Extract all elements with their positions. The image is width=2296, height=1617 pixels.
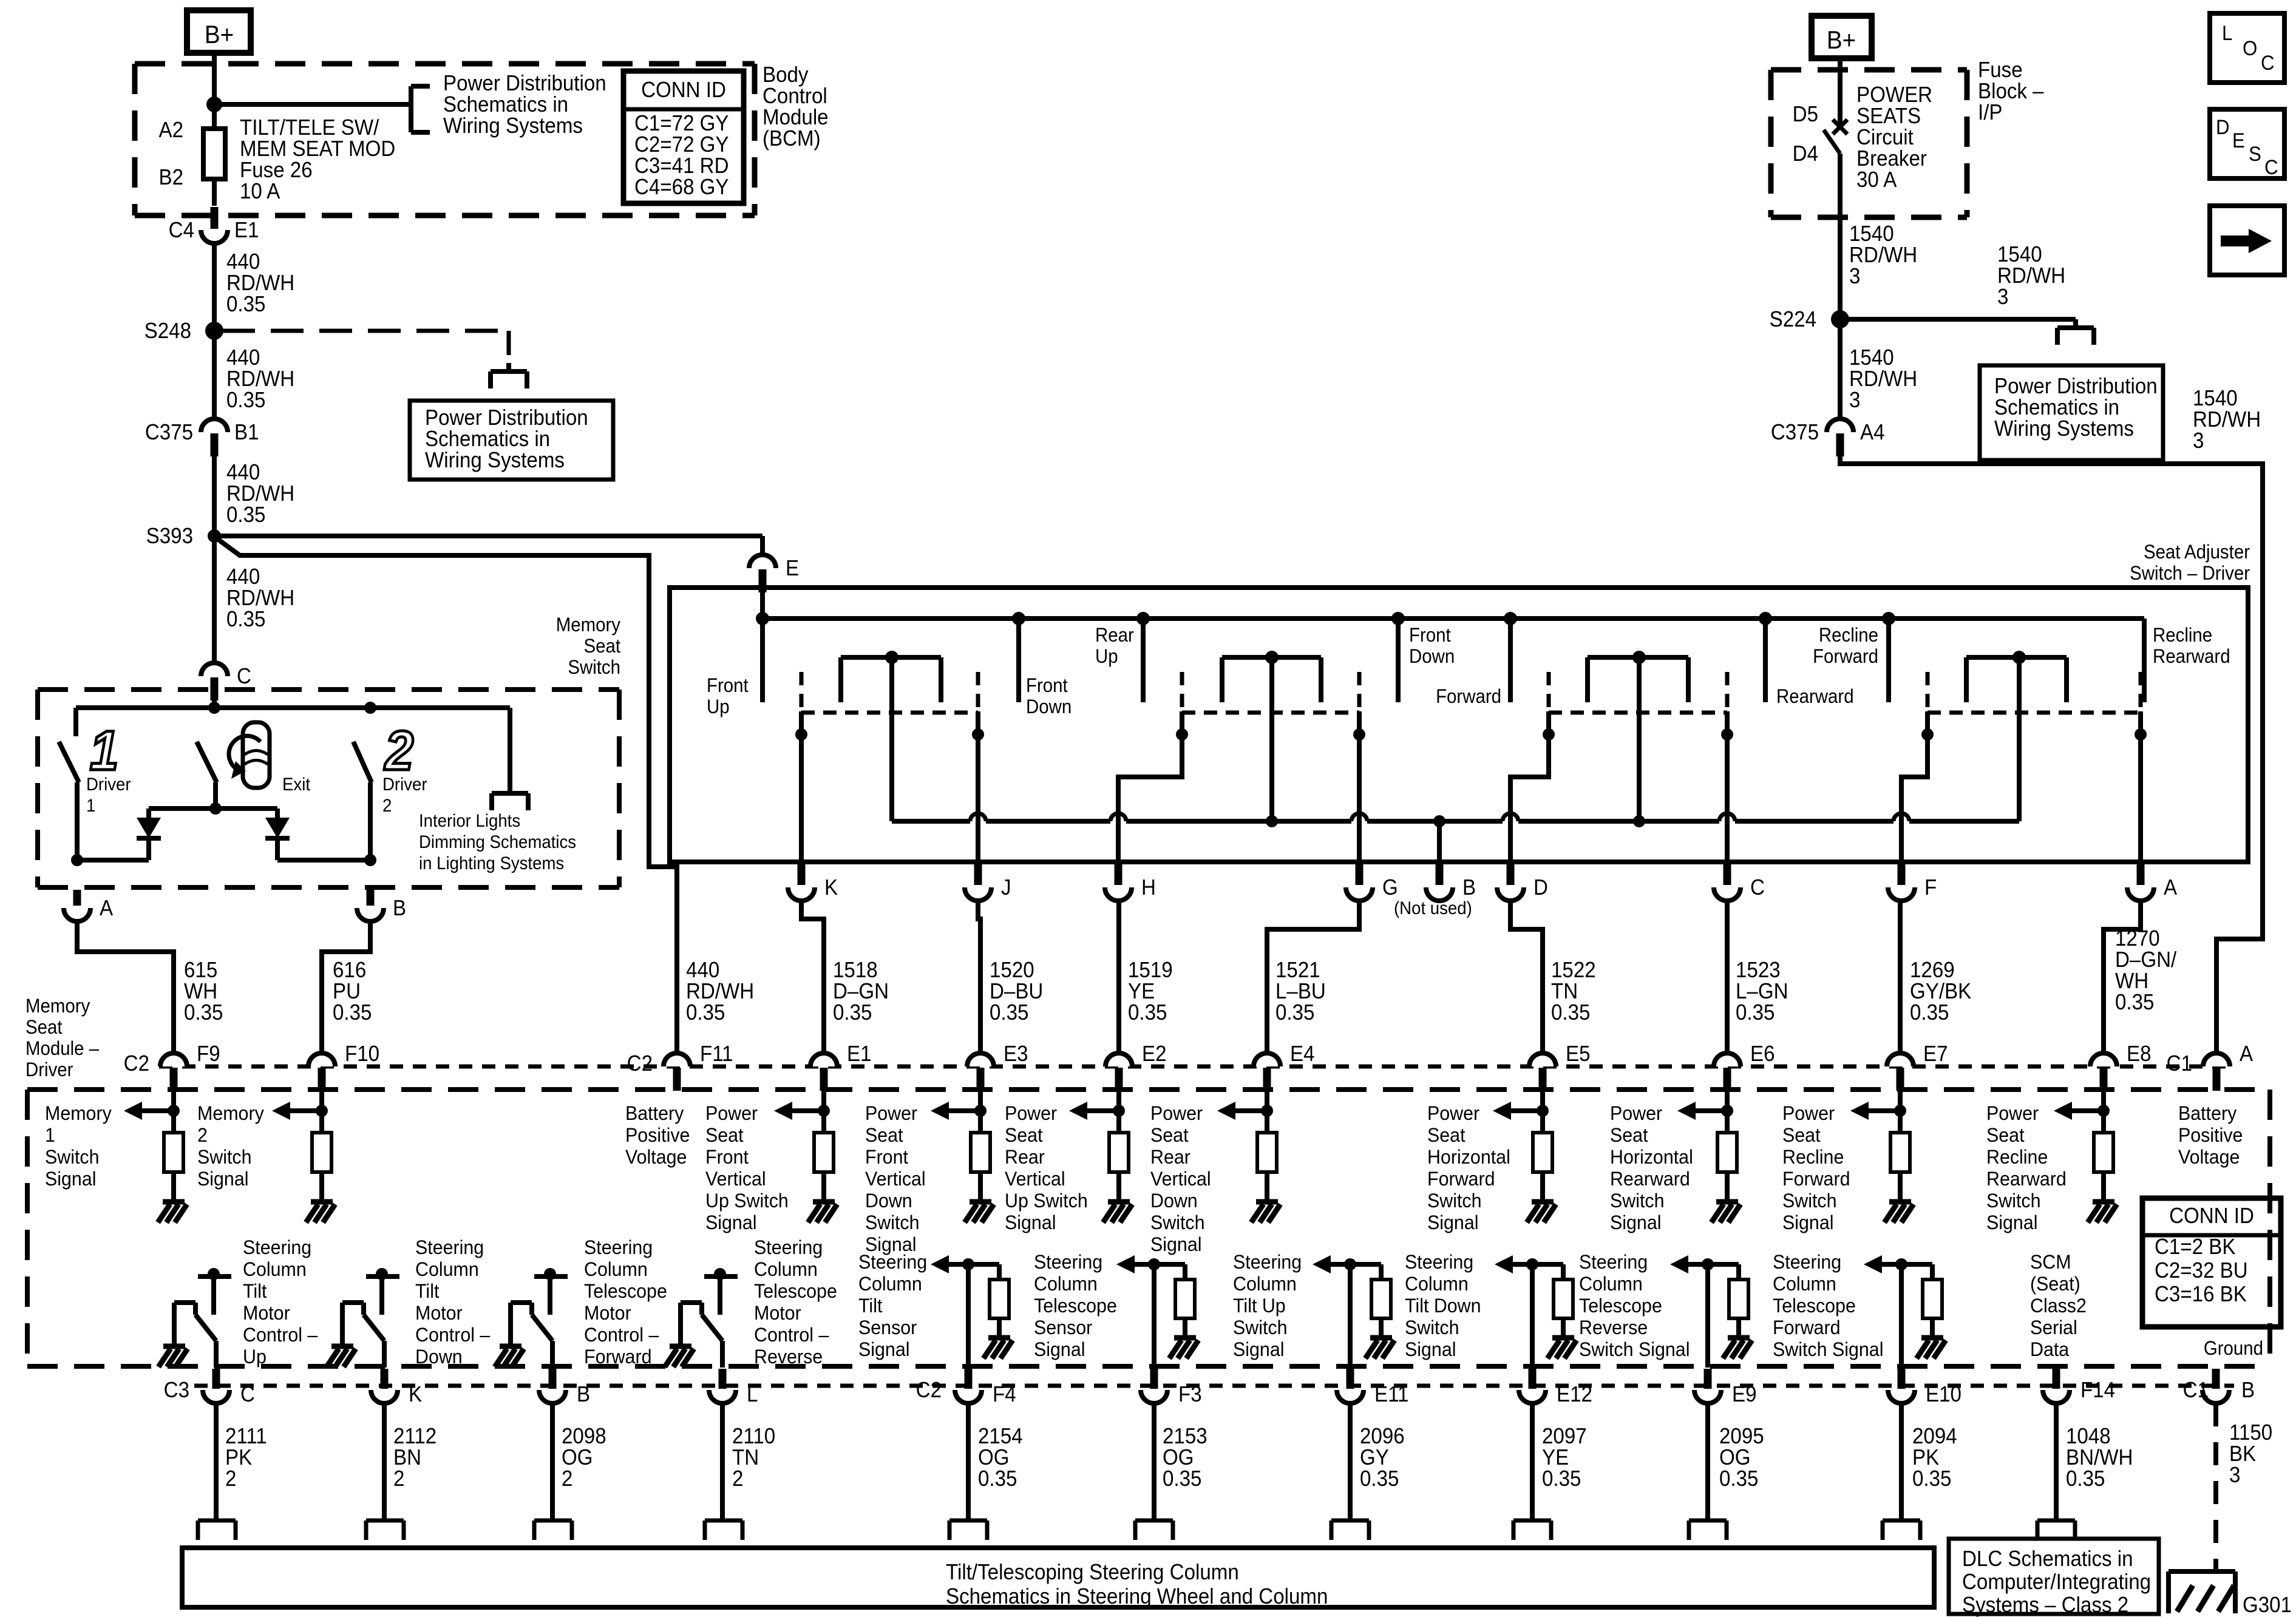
svg-text:Front: Front <box>1409 624 1451 646</box>
svg-text:Switch Signal: Switch Signal <box>1579 1338 1690 1360</box>
svg-text:PK: PK <box>1912 1446 1939 1470</box>
svg-text:3: 3 <box>1849 388 1860 413</box>
svg-text:Circuit: Circuit <box>1856 126 1914 150</box>
svg-text:Sensor: Sensor <box>858 1317 917 1338</box>
svg-text:Recline: Recline <box>1782 1146 1844 1168</box>
svg-text:Sensor: Sensor <box>1034 1317 1092 1338</box>
svg-text:1540: 1540 <box>1997 243 2042 267</box>
svg-text:G: G <box>1382 876 1398 900</box>
svg-text:C3: C3 <box>164 1378 189 1403</box>
svg-text:Control –: Control – <box>584 1324 659 1346</box>
svg-text:DLC Schematics in: DLC Schematics in <box>1962 1547 2133 1571</box>
svg-text:G301: G301 <box>2243 1593 2292 1617</box>
svg-text:2: 2 <box>384 719 413 782</box>
svg-text:Ground: Ground <box>2204 1337 2263 1359</box>
svg-text:OG: OG <box>978 1446 1010 1470</box>
svg-text:F11: F11 <box>700 1042 733 1066</box>
svg-text:Driver: Driver <box>86 775 131 795</box>
svg-text:2097: 2097 <box>1542 1425 1587 1449</box>
svg-text:E2: E2 <box>1142 1042 1166 1066</box>
svg-text:Tilt/Telescoping Steering Colu: Tilt/Telescoping Steering Column <box>946 1561 1239 1585</box>
svg-text:F4: F4 <box>993 1383 1016 1407</box>
svg-text:E8: E8 <box>2127 1042 2151 1066</box>
svg-text:Driver: Driver <box>25 1059 73 1080</box>
svg-text:C2: C2 <box>627 1052 653 1076</box>
svg-text:Voltage: Voltage <box>2178 1146 2240 1168</box>
svg-text:D5: D5 <box>1793 103 1818 127</box>
svg-text:440: 440 <box>226 250 260 274</box>
svg-text:K: K <box>824 876 838 900</box>
svg-text:0.35: 0.35 <box>2115 991 2154 1015</box>
svg-text:Recline: Recline <box>1819 624 1878 646</box>
svg-text:Seat: Seat <box>1427 1124 1466 1146</box>
svg-text:C: C <box>240 1383 255 1407</box>
svg-text:Tilt Down: Tilt Down <box>1405 1295 1481 1317</box>
svg-text:Fuse: Fuse <box>1978 58 2023 83</box>
svg-text:Switch: Switch <box>568 656 620 678</box>
svg-text:POWER: POWER <box>1856 83 1932 107</box>
svg-text:YE: YE <box>1542 1446 1569 1470</box>
svg-text:Signal: Signal <box>1150 1233 1201 1255</box>
svg-text:Rearward: Rearward <box>1776 685 1854 707</box>
svg-text:Signal: Signal <box>1427 1212 1478 1233</box>
svg-text:GY/BK: GY/BK <box>1910 980 1971 1004</box>
svg-text:Control –: Control – <box>243 1324 318 1346</box>
svg-text:2098: 2098 <box>562 1425 606 1449</box>
svg-text:0.35: 0.35 <box>226 293 265 317</box>
svg-text:I/P: I/P <box>1978 101 2002 125</box>
svg-text:Reverse: Reverse <box>754 1346 823 1368</box>
svg-text:1518: 1518 <box>833 958 878 983</box>
svg-text:Rear: Rear <box>1150 1146 1190 1168</box>
svg-text:Control –: Control – <box>754 1324 829 1346</box>
svg-text:Seat: Seat <box>1005 1124 1043 1146</box>
svg-text:Column: Column <box>415 1258 479 1280</box>
svg-text:1520: 1520 <box>990 958 1034 983</box>
svg-text:E4: E4 <box>1290 1042 1314 1066</box>
svg-text:Steering: Steering <box>243 1236 311 1258</box>
svg-text:RD/WH: RD/WH <box>1849 243 1917 268</box>
svg-text:B: B <box>1462 876 1476 900</box>
svg-text:RD/WH: RD/WH <box>226 482 294 506</box>
svg-text:C: C <box>237 665 251 689</box>
svg-text:RD/WH: RD/WH <box>686 980 754 1004</box>
svg-text:0.35: 0.35 <box>1542 1467 1581 1491</box>
svg-text:Dimming Schematics: Dimming Schematics <box>419 832 576 852</box>
svg-text:Forward: Forward <box>584 1346 651 1368</box>
svg-text:Driver: Driver <box>382 775 427 795</box>
svg-text:1270: 1270 <box>2115 927 2160 951</box>
svg-text:2153: 2153 <box>1163 1425 1207 1449</box>
svg-text:SCM: SCM <box>2030 1251 2071 1273</box>
svg-text:2095: 2095 <box>1719 1425 1764 1449</box>
svg-text:Motor: Motor <box>243 1302 290 1324</box>
svg-text:0.35: 0.35 <box>1910 1001 1949 1025</box>
svg-text:S248: S248 <box>144 319 191 344</box>
svg-text:Signal: Signal <box>1405 1338 1456 1360</box>
svg-text:0.35: 0.35 <box>978 1467 1017 1491</box>
svg-text:2110: 2110 <box>732 1425 775 1449</box>
svg-text:RD/WH: RD/WH <box>226 271 294 296</box>
svg-text:MEM SEAT MOD: MEM SEAT MOD <box>240 137 395 161</box>
svg-text:D–BU: D–BU <box>990 980 1043 1004</box>
svg-text:Module: Module <box>763 106 829 130</box>
svg-text:Recline: Recline <box>1986 1146 2048 1168</box>
svg-text:Module –: Module – <box>25 1037 100 1059</box>
svg-text:CONN ID: CONN ID <box>2169 1204 2254 1229</box>
svg-text:RD/WH: RD/WH <box>2193 408 2261 432</box>
svg-text:Power: Power <box>1986 1102 2039 1124</box>
svg-text:H: H <box>1141 876 1156 900</box>
svg-text:Rear: Rear <box>1095 624 1134 646</box>
svg-text:TN: TN <box>732 1446 759 1470</box>
svg-text:Wiring Systems: Wiring Systems <box>443 114 583 138</box>
svg-text:Schematics in: Schematics in <box>1994 396 2119 420</box>
svg-text:E1: E1 <box>847 1042 871 1066</box>
svg-text:Column: Column <box>754 1258 818 1280</box>
svg-text:Class2: Class2 <box>2030 1295 2087 1317</box>
svg-text:O: O <box>2243 36 2257 60</box>
svg-text:Systems – Class 2: Systems – Class 2 <box>1962 1593 2128 1617</box>
svg-text:Body: Body <box>763 63 809 87</box>
svg-text:E5: E5 <box>1566 1042 1590 1066</box>
svg-text:A: A <box>100 897 113 921</box>
svg-text:Control –: Control – <box>415 1324 491 1346</box>
svg-text:Switch: Switch <box>865 1212 920 1233</box>
svg-text:0.35: 0.35 <box>833 1001 872 1025</box>
svg-text:E11: E11 <box>1374 1383 1408 1407</box>
svg-text:Switch: Switch <box>1405 1317 1459 1338</box>
svg-text:0.35: 0.35 <box>226 503 265 527</box>
svg-text:Wiring Systems: Wiring Systems <box>425 449 565 473</box>
svg-text:TILT/TELE SW/: TILT/TELE SW/ <box>240 116 379 140</box>
svg-text:2: 2 <box>562 1467 572 1491</box>
svg-text:Battery: Battery <box>2178 1102 2237 1124</box>
svg-text:A: A <box>2164 876 2177 900</box>
svg-text:F3: F3 <box>1178 1383 1202 1407</box>
svg-text:BK: BK <box>2229 1442 2256 1466</box>
svg-text:A2: A2 <box>159 118 183 143</box>
svg-text:Forward: Forward <box>1782 1168 1850 1190</box>
svg-text:B+: B+ <box>1827 25 1856 54</box>
svg-text:2111: 2111 <box>225 1425 267 1449</box>
svg-text:CONN ID: CONN ID <box>641 78 726 103</box>
svg-text:1540: 1540 <box>1849 222 1894 246</box>
svg-text:Seat: Seat <box>705 1124 744 1146</box>
svg-text:Serial: Serial <box>2030 1317 2077 1338</box>
svg-text:Column: Column <box>1034 1273 1098 1295</box>
svg-text:Seat: Seat <box>1986 1124 2025 1146</box>
svg-text:2: 2 <box>382 796 392 816</box>
svg-text:Switch: Switch <box>1233 1317 1288 1338</box>
svg-text:C4=68 GY: C4=68 GY <box>634 175 729 200</box>
svg-text:Schematics in: Schematics in <box>443 93 568 117</box>
svg-text:1540: 1540 <box>2193 387 2238 411</box>
svg-text:Power: Power <box>1610 1102 1662 1124</box>
svg-text:Seat: Seat <box>25 1016 63 1038</box>
svg-text:1: 1 <box>45 1124 55 1146</box>
svg-text:Breaker: Breaker <box>1856 147 1927 171</box>
svg-text:30 A: 30 A <box>1856 168 1897 192</box>
svg-text:Front: Front <box>1026 674 1068 696</box>
svg-text:Tilt: Tilt <box>243 1280 267 1302</box>
svg-text:1522: 1522 <box>1551 958 1596 983</box>
svg-text:C1=2 BK: C1=2 BK <box>2155 1235 2235 1259</box>
svg-text:Seat: Seat <box>1610 1124 1648 1146</box>
svg-text:Control: Control <box>763 84 827 109</box>
svg-text:Switch: Switch <box>1427 1190 1482 1212</box>
svg-text:0.35: 0.35 <box>1551 1001 1590 1025</box>
svg-text:Vertical: Vertical <box>1150 1168 1211 1190</box>
svg-text:0.35: 0.35 <box>1360 1467 1399 1491</box>
svg-text:1: 1 <box>86 796 95 816</box>
svg-text:0.35: 0.35 <box>226 608 265 632</box>
svg-text:Computer/Integrating: Computer/Integrating <box>1962 1570 2151 1595</box>
svg-text:0.35: 0.35 <box>333 1001 372 1025</box>
svg-text:F9: F9 <box>197 1042 220 1066</box>
svg-text:C2: C2 <box>124 1052 149 1076</box>
svg-text:Front: Front <box>707 674 749 696</box>
svg-text:Steering: Steering <box>584 1236 653 1258</box>
svg-text:2: 2 <box>393 1467 404 1491</box>
svg-text:Column: Column <box>858 1273 922 1295</box>
svg-text:Signal: Signal <box>1610 1212 1661 1233</box>
svg-text:Rearward: Rearward <box>1986 1168 2067 1190</box>
svg-text:2096: 2096 <box>1360 1425 1405 1449</box>
svg-text:Forward: Forward <box>1427 1168 1495 1190</box>
svg-text:C: C <box>2261 51 2275 75</box>
svg-text:Up: Up <box>243 1346 267 1368</box>
svg-text:1540: 1540 <box>1849 346 1894 370</box>
svg-text:Up: Up <box>707 696 730 717</box>
svg-text:BN: BN <box>393 1446 421 1470</box>
svg-text:Steering: Steering <box>1773 1251 1841 1273</box>
svg-text:F14: F14 <box>2080 1378 2115 1403</box>
svg-text:2094: 2094 <box>1912 1425 1957 1449</box>
svg-text:Switch: Switch <box>1150 1212 1205 1233</box>
svg-text:1048: 1048 <box>2066 1425 2111 1449</box>
svg-text:Motor: Motor <box>415 1302 463 1324</box>
svg-text:C375: C375 <box>145 421 193 445</box>
svg-text:L–BU: L–BU <box>1275 980 1326 1004</box>
svg-text:C3=41 RD: C3=41 RD <box>634 154 729 178</box>
svg-text:Telescope: Telescope <box>1034 1295 1117 1317</box>
svg-text:0.35: 0.35 <box>1275 1001 1314 1025</box>
svg-text:440: 440 <box>226 346 260 370</box>
svg-text:D: D <box>2216 115 2230 139</box>
svg-text:3: 3 <box>2193 429 2204 453</box>
svg-text:F: F <box>1924 876 1937 900</box>
svg-text:Battery: Battery <box>625 1102 684 1124</box>
svg-text:E6: E6 <box>1750 1042 1775 1066</box>
svg-text:Tilt Up: Tilt Up <box>1233 1295 1286 1317</box>
svg-text:Rearward: Rearward <box>1610 1168 1690 1190</box>
svg-text:Steering: Steering <box>754 1236 823 1258</box>
svg-text:Horizontal: Horizontal <box>1427 1146 1510 1168</box>
svg-text:3: 3 <box>1849 265 1860 289</box>
svg-text:Power: Power <box>865 1102 917 1124</box>
svg-text:K: K <box>409 1383 422 1407</box>
svg-text:Vertical: Vertical <box>705 1168 766 1190</box>
svg-text:Vertical: Vertical <box>1005 1168 1065 1190</box>
svg-text:2: 2 <box>732 1467 743 1491</box>
svg-text:Recline: Recline <box>2153 624 2212 646</box>
svg-text:L–GN: L–GN <box>1736 980 1788 1004</box>
svg-text:E3: E3 <box>1004 1042 1028 1066</box>
svg-text:Telescope: Telescope <box>1773 1295 1856 1317</box>
svg-text:RD/WH: RD/WH <box>226 586 294 611</box>
svg-text:Voltage: Voltage <box>625 1146 687 1168</box>
svg-text:Signal: Signal <box>1233 1338 1284 1360</box>
svg-text:E12: E12 <box>1557 1383 1592 1407</box>
svg-text:S: S <box>2249 142 2261 166</box>
svg-text:Memory: Memory <box>45 1102 112 1124</box>
svg-text:Memory: Memory <box>197 1102 264 1124</box>
svg-text:Motor: Motor <box>754 1302 801 1324</box>
svg-text:Interior Lights: Interior Lights <box>419 811 520 831</box>
svg-text:Switch: Switch <box>45 1146 100 1168</box>
svg-text:1150: 1150 <box>2229 1421 2272 1445</box>
svg-text:Seat: Seat <box>1782 1124 1821 1146</box>
svg-text:Steering: Steering <box>1034 1251 1102 1273</box>
svg-text:Positive: Positive <box>625 1124 690 1146</box>
svg-text:Power: Power <box>1150 1102 1203 1124</box>
svg-text:WH: WH <box>2115 969 2148 994</box>
svg-text:L: L <box>747 1383 758 1407</box>
svg-text:Vertical: Vertical <box>865 1168 926 1190</box>
svg-text:Signal: Signal <box>858 1338 909 1360</box>
svg-text:RD/WH: RD/WH <box>1849 367 1917 392</box>
svg-text:Switch Signal: Switch Signal <box>1773 1338 1883 1360</box>
svg-text:0.35: 0.35 <box>686 1001 725 1025</box>
svg-text:Forward: Forward <box>1773 1317 1840 1338</box>
svg-text:PK: PK <box>225 1446 252 1470</box>
svg-text:Signal: Signal <box>1034 1338 1085 1360</box>
svg-text:Column: Column <box>584 1258 648 1280</box>
svg-text:C2: C2 <box>916 1378 942 1403</box>
svg-text:Front: Front <box>705 1146 749 1168</box>
svg-text:1269: 1269 <box>1910 958 1955 983</box>
svg-text:Down: Down <box>1026 696 1072 717</box>
svg-text:3: 3 <box>1997 285 2008 310</box>
svg-text:1521: 1521 <box>1275 958 1320 983</box>
svg-text:Tilt: Tilt <box>415 1280 440 1302</box>
svg-text:2: 2 <box>197 1124 208 1146</box>
svg-text:Reverse: Reverse <box>1579 1317 1648 1338</box>
svg-text:Signal: Signal <box>1986 1212 2037 1233</box>
svg-text:L: L <box>2222 21 2232 45</box>
svg-text:Telescope: Telescope <box>754 1280 837 1302</box>
svg-text:C4: C4 <box>169 219 194 243</box>
svg-text:E1: E1 <box>234 219 259 243</box>
svg-text:Rearward: Rearward <box>2153 645 2230 667</box>
svg-text:YE: YE <box>1128 980 1155 1004</box>
svg-text:440: 440 <box>686 958 719 983</box>
svg-text:0.35: 0.35 <box>1128 1001 1167 1025</box>
svg-text:Up Switch: Up Switch <box>1005 1190 1088 1212</box>
svg-text:E9: E9 <box>1732 1383 1756 1407</box>
svg-text:Steering: Steering <box>858 1251 927 1273</box>
svg-text:Power: Power <box>1427 1102 1479 1124</box>
svg-text:WH: WH <box>184 980 217 1004</box>
svg-text:C1=72 GY: C1=72 GY <box>634 112 729 136</box>
svg-text:Block –: Block – <box>1978 80 2044 104</box>
svg-text:Positive: Positive <box>2178 1124 2243 1146</box>
svg-text:B1: B1 <box>234 421 259 445</box>
svg-text:C375: C375 <box>1771 421 1819 445</box>
svg-text:RD/WH: RD/WH <box>226 367 294 392</box>
svg-text:Seat: Seat <box>865 1124 903 1146</box>
svg-text:0.35: 0.35 <box>1719 1467 1758 1491</box>
svg-text:Schematics in: Schematics in <box>425 427 550 452</box>
svg-text:B: B <box>577 1383 590 1407</box>
svg-text:Column: Column <box>1773 1273 1836 1295</box>
svg-text:Forward: Forward <box>1436 685 1501 707</box>
svg-text:(Seat): (Seat) <box>2030 1273 2080 1295</box>
svg-text:S393: S393 <box>146 524 193 549</box>
svg-text:(Not used): (Not used) <box>1394 898 1472 918</box>
svg-text:RD/WH: RD/WH <box>1997 264 2065 288</box>
svg-text:Memory: Memory <box>556 614 621 636</box>
svg-text:C1: C1 <box>2167 1052 2192 1076</box>
svg-text:C2=72 GY: C2=72 GY <box>634 133 729 157</box>
svg-text:Signal: Signal <box>45 1168 96 1190</box>
svg-text:Signal: Signal <box>197 1168 248 1190</box>
svg-text:D: D <box>1533 876 1548 900</box>
svg-text:Power: Power <box>705 1102 758 1124</box>
svg-text:E: E <box>2232 129 2245 152</box>
svg-text:Exit: Exit <box>282 775 310 795</box>
svg-text:Steering: Steering <box>415 1236 484 1258</box>
svg-text:Steering: Steering <box>1579 1251 1648 1273</box>
svg-text:Steering: Steering <box>1233 1251 1302 1273</box>
svg-text:D4: D4 <box>1793 142 1818 166</box>
svg-text:C: C <box>1750 876 1765 900</box>
svg-text:0.35: 0.35 <box>1736 1001 1775 1025</box>
svg-text:3: 3 <box>2229 1463 2240 1488</box>
svg-text:1519: 1519 <box>1128 958 1173 983</box>
svg-text:1: 1 <box>90 719 118 782</box>
svg-text:(BCM): (BCM) <box>763 127 821 151</box>
svg-text:Seat Adjuster: Seat Adjuster <box>2144 541 2250 563</box>
svg-text:B+: B+ <box>205 19 234 49</box>
svg-text:Front: Front <box>865 1146 908 1168</box>
svg-text:C1: C1 <box>2183 1378 2209 1403</box>
svg-text:Motor: Motor <box>584 1302 631 1324</box>
svg-text:Power Distribution: Power Distribution <box>443 72 606 96</box>
svg-text:Tilt: Tilt <box>858 1295 883 1317</box>
svg-text:PU: PU <box>333 980 361 1004</box>
svg-text:2: 2 <box>225 1467 236 1491</box>
svg-text:Power Distribution: Power Distribution <box>1994 375 2158 399</box>
svg-text:Wiring Systems: Wiring Systems <box>1994 417 2134 441</box>
svg-text:E7: E7 <box>1923 1042 1948 1066</box>
svg-text:Column: Column <box>1579 1273 1643 1295</box>
svg-text:Seat: Seat <box>583 635 620 657</box>
svg-text:OG: OG <box>562 1446 593 1470</box>
svg-text:B: B <box>393 897 406 921</box>
svg-text:1523: 1523 <box>1736 958 1781 983</box>
svg-text:C2=32 BU: C2=32 BU <box>2155 1259 2248 1283</box>
svg-text:A: A <box>2240 1042 2253 1066</box>
svg-text:Down: Down <box>1409 645 1455 667</box>
svg-text:Memory: Memory <box>25 995 90 1017</box>
svg-text:Up Switch: Up Switch <box>705 1190 789 1212</box>
svg-text:Rear: Rear <box>1005 1146 1045 1168</box>
svg-text:S224: S224 <box>1770 308 1816 332</box>
svg-text:B: B <box>2241 1378 2255 1403</box>
svg-text:Fuse 26: Fuse 26 <box>240 158 313 183</box>
